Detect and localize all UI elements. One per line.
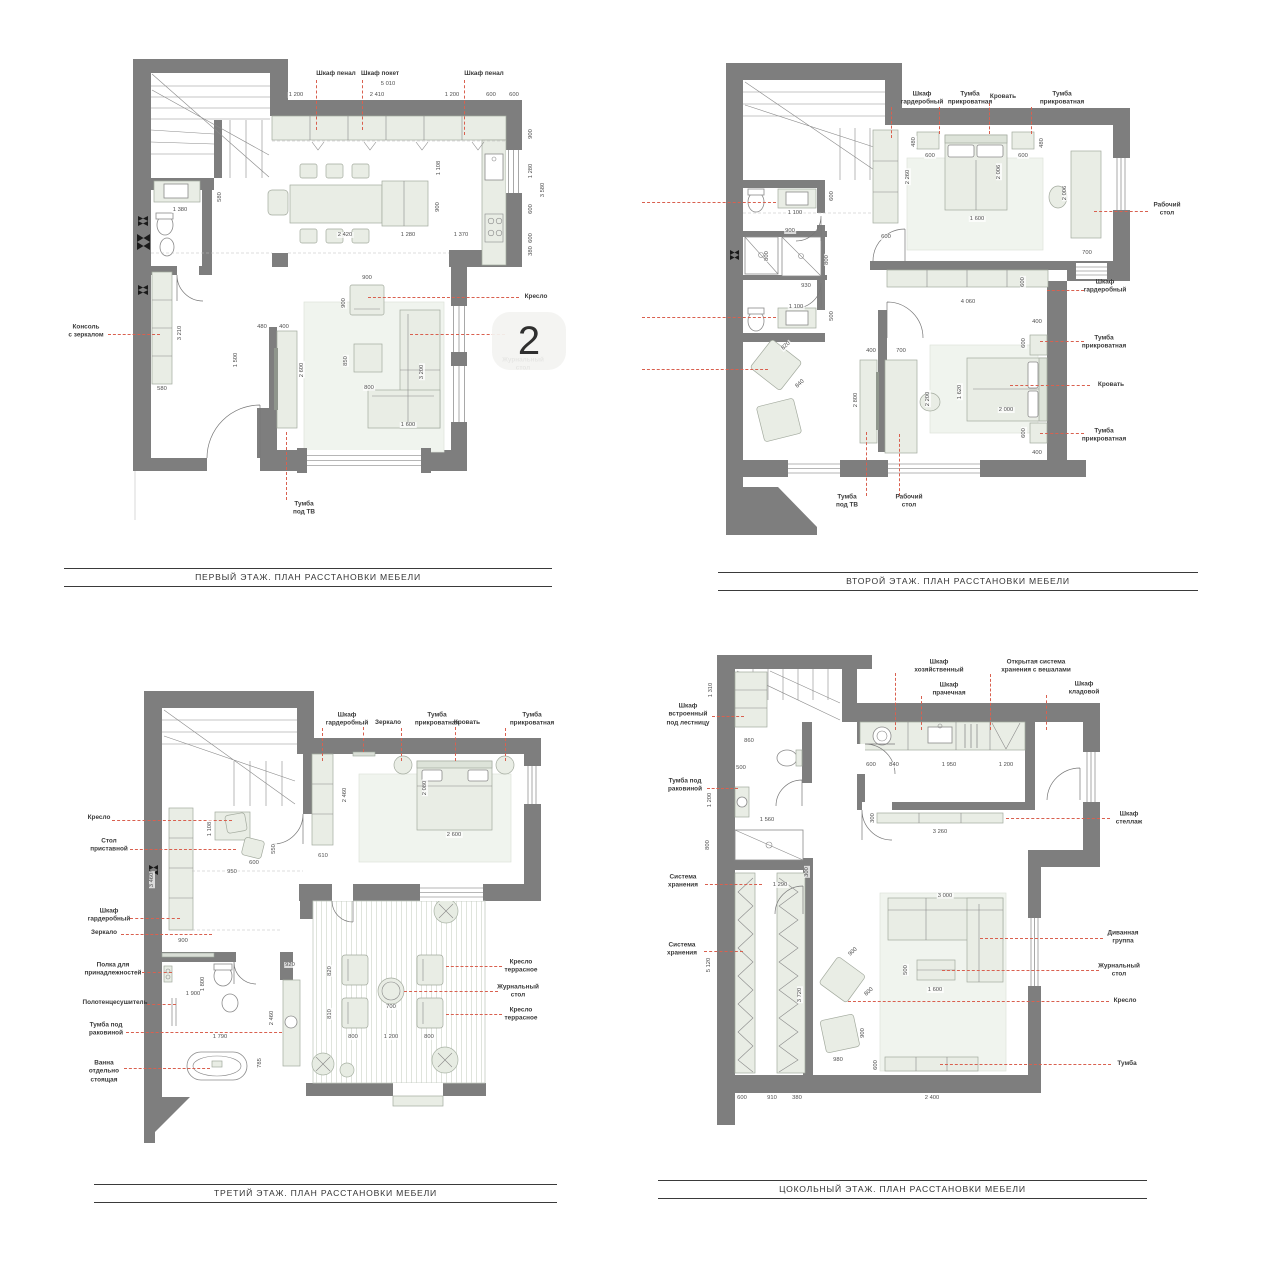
dimension-text: 500 [903,964,909,976]
dimension-text: 700 [385,1004,397,1010]
dimension-text: 580 [156,386,168,392]
dimension-text: 600 [736,1095,748,1101]
leader-line [848,1001,1109,1002]
callout-label: Шкаф гардеробный [326,712,369,729]
leader-line [642,317,776,318]
dimension-text: 1 290 [772,882,789,888]
dimension-text: 1 280 [400,232,417,238]
leader-line [704,951,743,952]
dimension-text: 1 280 [528,163,534,180]
callout-label: Шкаф покет [361,70,399,78]
dimension-text: 4 060 [960,299,977,305]
leader-line [712,716,744,717]
leader-line [1010,385,1090,386]
callout-label: Зеркало [375,719,401,727]
dimension-text: 1 200 [998,762,1015,768]
dimension-text: 1 108 [436,160,442,177]
callout-label: Тумба под ТВ [836,494,858,511]
dimension-text: 5 120 [706,957,712,974]
dimension-text: 3 000 [937,893,954,899]
dimension-text: 1 620 [957,384,963,401]
leader-line [362,80,363,130]
dimension-text: 600 [528,203,534,215]
dimension-text: 1 370 [453,232,470,238]
dimension-text: 2 800 [853,392,859,409]
leader-line [322,728,323,761]
dimension-text: 3 200 [419,364,425,381]
leader-line [316,80,317,130]
dimension-text: 1 108 [207,821,213,838]
dimension-text: 800 [824,254,830,266]
dimension-text: 3 580 [540,182,546,199]
callout-label: Журнальный стол [1098,963,1140,980]
leader-line [1040,341,1084,342]
dimension-text: 600 [1021,427,1027,439]
callout-label: Шкаф пенал [316,70,355,78]
dimension-text: 400 [1031,450,1043,456]
plan-basement-floor: Шкаф хозяйственныйШкаф прачечнаяОткрытая… [650,648,1230,1168]
callout-label: Тумба прикроватная [510,712,554,729]
callout-label: Шкаф прачечная [932,682,965,699]
dimension-text: 2 420 [337,232,354,238]
leader-line [1031,107,1032,134]
dimension-text: 785 [257,1057,263,1069]
callout-label: Тумба прикроватная [1082,428,1126,445]
leader-line [124,1068,210,1069]
leader-line [899,434,900,496]
dimension-text: 1 310 [708,682,714,699]
dimension-text: 380 [528,245,534,257]
dimension-text: 1 200 [383,1034,400,1040]
leader-line [130,849,236,850]
plan-third-floor: Шкаф гардеробныйЗеркалоТумба прикроватна… [84,666,624,1186]
dimension-text: 1 100 [788,304,805,310]
plan-third-floor-annotations: Шкаф гардеробныйЗеркалоТумба прикроватна… [84,666,624,1186]
dimension-text: 300 [870,812,876,824]
dimension-text: 400 [278,324,290,330]
dimension-text: 600 [1021,337,1027,349]
leader-line [455,727,456,761]
callout-label: Тумба прикроватная [948,91,992,108]
callout-label: Шкаф гардеробный [1084,279,1127,296]
callout-label: Тумба прикроватная [1040,91,1084,108]
callout-label: Кресло [88,814,111,822]
dimension-text: 2 006 [996,164,1002,181]
dimension-text: 600 [1020,276,1026,288]
dimension-text: 1 800 [200,976,206,993]
callout-label: Диванная группа [1108,930,1139,947]
dimension-text: 820 [327,965,333,977]
dimension-text: 950 [226,869,238,875]
dimension-text: 1 950 [941,762,958,768]
leader-line [446,966,502,967]
dimension-text: 910 [766,1095,778,1101]
page-number-watermark: 2 [492,312,566,370]
leader-line [410,334,505,335]
dimension-text: 300 [804,866,810,878]
dimension-text: 930 [800,283,812,289]
dimension-text: 2 400 [924,1095,941,1101]
dimension-text: 500 [735,765,747,771]
callout-label: Кровать [454,719,480,727]
title-second-floor: ВТОРОЙ ЭТАЖ. ПЛАН РАССТАНОВКИ МЕБЕЛИ [718,572,1198,591]
dimension-text: 800 [347,1034,359,1040]
callout-label: Кресло террасное [505,959,538,976]
callout-label: Шкаф кладовой [1069,681,1100,698]
leader-line [921,696,922,730]
dimension-text: 600 [873,1059,879,1071]
title-third-floor-text: ТРЕТИЙ ЭТАЖ. ПЛАН РАССТАНОВКИ МЕБЕЛИ [214,1188,437,1198]
dimension-text: 600 [248,860,260,866]
dimension-text: 600 [865,762,877,768]
dimension-text: 1 500 [233,352,239,369]
leader-line [705,884,762,885]
callout-label: Рабочий стол [1154,202,1181,219]
leader-line [990,674,991,730]
dimension-text: 5 010 [380,81,397,87]
leader-line [1040,433,1084,434]
dimension-text: 840 [794,378,807,390]
leader-line [363,727,364,752]
dimension-text: 1 790 [212,1034,229,1040]
callout-label: Кровать [1098,381,1124,389]
callout-label: Стол приставной [90,838,128,855]
leader-line [989,103,990,134]
dimension-text: 900 [528,128,534,140]
callout-label: Полка для принадлежностей [85,962,142,979]
callout-label: Тумба под раковиной [89,1022,123,1039]
dimension-text: 600 [829,190,835,202]
dimension-text: 900 [361,275,373,281]
leader-line [707,788,738,789]
callout-label: Зеркало [91,929,117,937]
callout-label: Шкаф встроенный под лестницу [667,703,710,728]
dimension-text: 800 [363,385,375,391]
dimension-text: 480 [911,136,917,148]
dimension-text: 700 [1081,250,1093,256]
dimension-text: 380 [791,1095,803,1101]
dimension-text: 820 [780,340,793,352]
dimension-text: 2 460 [342,787,348,804]
callout-label: Кровать [990,93,1016,101]
leader-line [130,918,180,919]
leader-line [404,991,498,992]
dimension-text: 1 600 [400,422,417,428]
leader-line [642,369,768,370]
dimension-text: 600 [924,153,936,159]
dimension-text: 580 [217,191,223,203]
dimension-text: 840 [888,762,900,768]
dimension-text: 900 [177,938,189,944]
leader-line [895,673,896,730]
page-number: 2 [518,319,540,364]
dimension-text: 900 [341,297,347,309]
dimension-text: 480 [1039,137,1045,149]
dimension-text: 1 100 [787,210,804,216]
leader-line [401,728,402,761]
dimension-text: 1 200 [288,92,305,98]
leader-line [446,1014,502,1015]
dimension-text: 900 [860,1027,866,1039]
leader-line [147,1004,176,1005]
dimension-text: 1 600 [927,987,944,993]
leader-line [464,80,465,135]
dimension-text: 980 [832,1057,844,1063]
dimension-text: 400 [865,348,877,354]
leader-line [942,970,1099,971]
dimension-text: 600 [485,92,497,98]
dimension-text: 600 [880,234,892,240]
dimension-text: 2 460 [269,1010,275,1027]
callout-label: Журнальный стол [497,984,539,1001]
dimension-text: 900 [435,201,441,213]
title-second-floor-text: ВТОРОЙ ЭТАЖ. ПЛАН РАССТАНОВКИ МЕБЕЛИ [846,576,1070,586]
leader-line [1046,695,1047,730]
plan-first-floor-annotations: Шкаф пеналШкаф покетШкаф пеналКреслоЖурн… [64,50,604,565]
callout-label: Открытая система хранения с вешалами [1001,659,1071,676]
dimension-text: 1 600 [969,216,986,222]
dimension-text: 610 [317,853,329,859]
dimension-text: 800 [705,839,711,851]
callout-label: Рабочий стол [896,494,923,511]
callout-label: Тумба прикроватная [415,712,459,729]
dimension-text: 800 [423,1034,435,1040]
callout-label: Кресло террасное [505,1007,538,1024]
leader-line [980,938,1103,939]
callout-label: Система хранения [667,942,697,959]
plan-second-floor: Шкаф гардеробныйТумба прикроватнаяКроват… [690,50,1230,595]
dimension-text: 2 200 [925,391,931,408]
dimension-text: 3 260 [932,829,949,835]
dimension-text: 2 006 [1062,185,1068,202]
dimension-text: 2 410 [369,92,386,98]
leader-line [368,297,519,298]
dimension-text: 900 [847,946,860,958]
callout-label: Ванна отдельно стоящая [89,1060,119,1085]
callout-label: Тумба под ТВ [293,501,315,518]
callout-label: Шкаф стеллаж [1116,811,1142,828]
callout-label: Тумба [1117,1060,1136,1068]
callout-label: Шкаф гардеробный [901,91,944,108]
callout-label: Шкаф хозяйственный [914,659,963,676]
dimension-text: 1 200 [444,92,461,98]
plan-first-floor: Шкаф пеналШкаф покетШкаф пеналКреслоЖурн… [64,50,604,565]
leader-line [286,432,287,500]
dimension-text: 800 [863,986,876,998]
leader-line [866,432,867,496]
leader-line [142,972,172,973]
leader-line [108,334,160,335]
dimension-text: 800 [764,250,770,262]
dimension-text: 2 260 [905,169,911,186]
leader-line [505,728,506,761]
dimension-text: 400 [1031,319,1043,325]
leader-line [891,107,892,138]
dimension-text: 860 [743,738,755,744]
dimension-text: 920 [284,962,296,968]
title-first-floor-text: ПЕРВЫЙ ЭТАЖ. ПЛАН РАССТАНОВКИ МЕБЕЛИ [195,572,421,582]
dimension-text: 850 [343,355,349,367]
callout-label: Кресло [1114,997,1137,1005]
dimension-text: 2 600 [299,362,305,379]
dimension-text: 600 [508,92,520,98]
dimension-text: 900 [784,228,796,234]
dimension-text: 1 200 [707,792,713,809]
dimension-text: 550 [271,843,277,855]
dimension-text: 810 [327,1008,333,1020]
callout-label: Кресло [525,293,548,301]
dimension-text: 3 210 [177,325,183,342]
leader-line [642,202,776,203]
dimension-text: 1 380 [172,207,189,213]
leader-line [940,1064,1111,1065]
leader-line [939,107,940,134]
dimension-text: 600 [528,232,534,244]
dimension-text: 3 720 [797,987,803,1004]
callout-label: Тумба прикроватная [1082,335,1126,352]
plan-second-floor-annotations: Шкаф гардеробныйТумба прикроватнаяКроват… [690,50,1230,595]
dimension-text: 500 [829,310,835,322]
title-third-floor: ТРЕТИЙ ЭТАЖ. ПЛАН РАССТАНОВКИ МЕБЕЛИ [94,1184,557,1203]
callout-label: Система хранения [668,874,698,891]
title-first-floor: ПЕРВЫЙ ЭТАЖ. ПЛАН РАССТАНОВКИ МЕБЕЛИ [64,568,552,587]
drawing-sheet: Шкаф пеналШкаф покетШкаф пеналКреслоЖурн… [0,0,1280,1280]
leader-line [1006,818,1110,819]
plan-basement-annotations: Шкаф хозяйственныйШкаф прачечнаяОткрытая… [650,648,1230,1168]
title-basement-floor-text: ЦОКОЛЬНЫЙ ЭТАЖ. ПЛАН РАССТАНОВКИ МЕБЕЛИ [779,1184,1026,1194]
dimension-text: 480 [256,324,268,330]
leader-line [121,934,212,935]
dimension-text: 2 600 [446,832,463,838]
dimension-text: 2 080 [422,780,428,797]
leader-line [1047,290,1084,291]
leader-line [112,820,232,821]
leader-line [1094,211,1148,212]
dimension-text: 3 460 [149,872,155,889]
title-basement-floor: ЦОКОЛЬНЫЙ ЭТАЖ. ПЛАН РАССТАНОВКИ МЕБЕЛИ [658,1180,1147,1199]
dimension-text: 1 560 [759,817,776,823]
callout-label: Шкаф гардеробный [88,908,131,925]
callout-label: Полотенцесушитель [82,999,147,1007]
dimension-text: 600 [1017,153,1029,159]
callout-label: Шкаф пенал [464,70,503,78]
leader-line [126,1032,282,1033]
callout-label: Консоль с зеркалом [68,324,103,341]
callout-label: Тумба под раковиной [668,778,702,795]
dimension-text: 2 000 [998,407,1015,413]
dimension-text: 700 [895,348,907,354]
dimension-text: 1 900 [185,991,202,997]
